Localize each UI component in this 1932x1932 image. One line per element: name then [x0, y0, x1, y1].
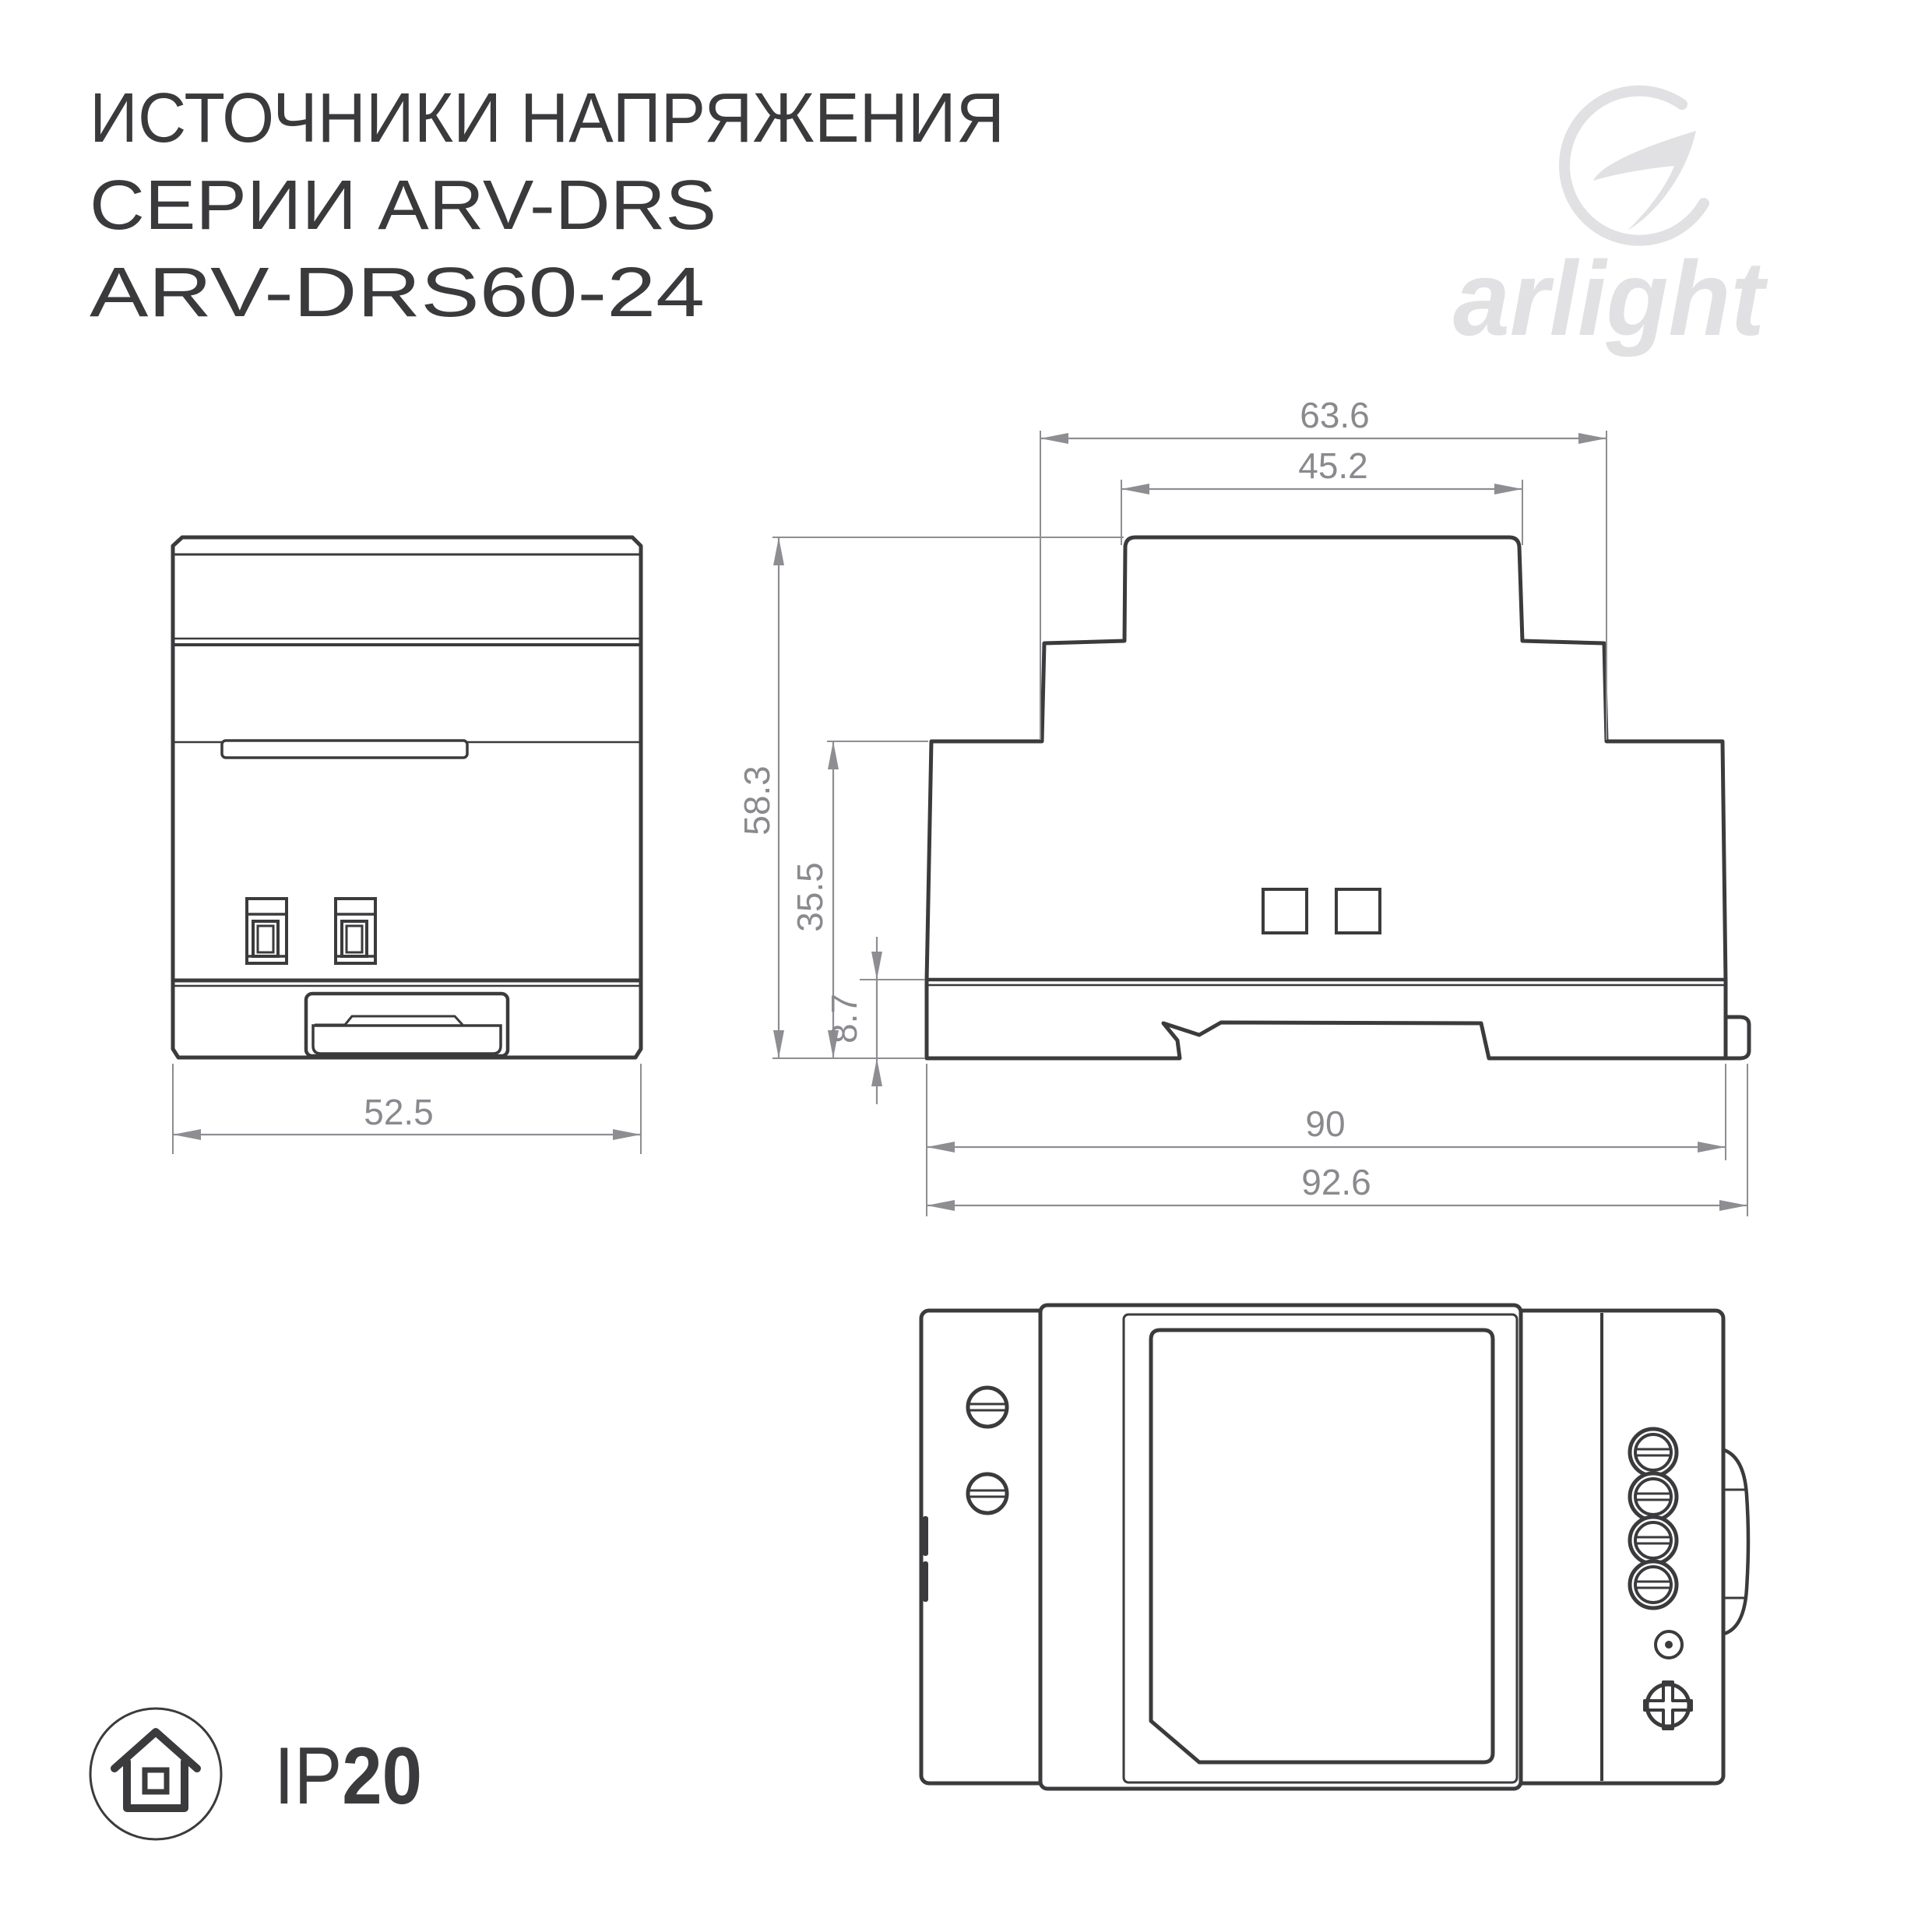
- side-dim-rail-height: 8.7: [824, 937, 925, 1104]
- bottom-din-bracket: [1724, 1450, 1748, 1634]
- side-hat-width-value: 45.2: [1298, 445, 1368, 486]
- technical-drawing-canvas: ИСТОЧНИКИ НАПРЯЖЕНИЯ СЕРИИ ARV-DRS ARV-D…: [0, 0, 1932, 1932]
- house-icon: [114, 1732, 197, 1808]
- front-width-value: 52.5: [364, 1092, 434, 1132]
- ip-rating-badge: IP20: [90, 1709, 422, 1839]
- front-terminal-block-left: [247, 899, 287, 963]
- bottom-left-slot-1: [923, 1516, 928, 1556]
- bottom-input-screw-bottom: [968, 1474, 1007, 1513]
- ip-prefix: IP: [274, 1731, 342, 1821]
- bottom-input-screw-top: [968, 1388, 1007, 1427]
- side-body-width-value: 90: [1305, 1103, 1345, 1144]
- page: { "title": { "line1": "ИСТОЧНИКИ НАПРЯЖЕ…: [0, 0, 1932, 1932]
- side-indicator-window-left: [1263, 889, 1307, 933]
- brand-logo: arlight: [1453, 91, 1768, 357]
- side-total-height-value: 58.3: [737, 765, 777, 836]
- side-full-width-value: 92.6: [1301, 1162, 1371, 1202]
- logo-swoosh-leaf-icon: [1593, 131, 1696, 231]
- side-rail-height-value: 8.7: [824, 994, 864, 1043]
- ip-value: 20: [342, 1731, 422, 1821]
- bottom-label-plate: [1151, 1330, 1493, 1762]
- side-din-latch-tab: [1726, 1017, 1749, 1058]
- logo-wordmark: arlight: [1453, 239, 1768, 357]
- title-line-3: ARV-DRS60-24: [90, 254, 705, 332]
- page-title: ИСТОЧНИКИ НАПРЯЖЕНИЯ СЕРИИ ARV-DRS ARV-D…: [90, 79, 1005, 332]
- side-view: 63.6 45.2 58.3 35.5: [737, 395, 1749, 1216]
- title-line-2: СЕРИИ ARV-DRS: [90, 167, 716, 245]
- side-body-height-value: 35.5: [790, 862, 830, 932]
- front-vent-slot: [222, 741, 467, 758]
- side-dim-hat-width: 45.2: [1121, 445, 1522, 545]
- side-indicator-window-right: [1336, 889, 1380, 933]
- front-dim-width: 52.5: [173, 1064, 641, 1154]
- dim-arrow: [613, 1129, 641, 1140]
- front-din-clip: [306, 994, 508, 1056]
- bottom-view: [921, 1305, 1748, 1789]
- front-terminal-block-right: [336, 899, 375, 963]
- dim-arrow: [173, 1129, 201, 1140]
- title-line-1: ИСТОЧНИКИ НАПРЯЖЕНИЯ: [90, 79, 1005, 157]
- side-top-width-value: 63.6: [1300, 395, 1370, 435]
- front-view: 52.5: [173, 537, 641, 1154]
- bottom-left-slot-2: [923, 1561, 928, 1602]
- bottom-led-indicator: [1656, 1631, 1682, 1658]
- ip-rating-text: IP20: [274, 1731, 422, 1821]
